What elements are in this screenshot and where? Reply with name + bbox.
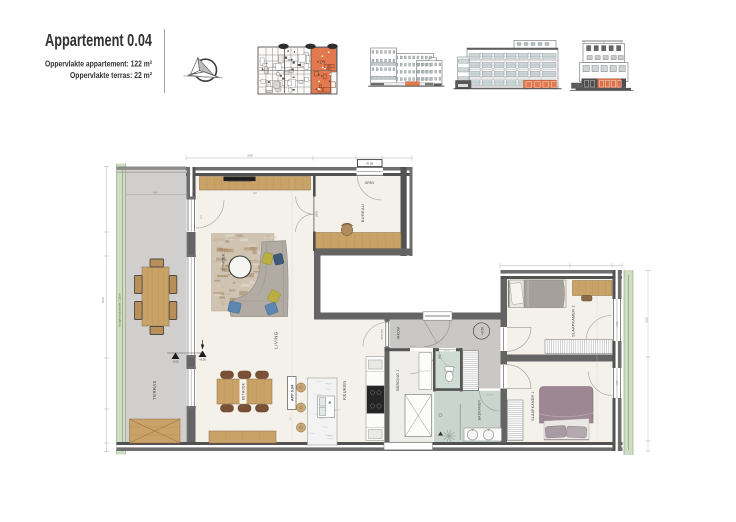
svg-text:A150: A150	[616, 380, 619, 386]
svg-text:BUREAU: BUREAU	[361, 204, 365, 222]
svg-text:80/207: 80/207	[444, 350, 451, 352]
svg-text:+0.30: +0.30	[199, 358, 206, 362]
svg-text:INKOM: INKOM	[397, 327, 401, 340]
svg-text:GRSV: GRSV	[365, 181, 375, 185]
svg-text:ZITHOEK: ZITHOEK	[222, 253, 226, 271]
svg-text:Appartement 0.04: Appartement 0.04	[45, 30, 152, 50]
svg-text:+0.30: +0.30	[480, 327, 484, 335]
svg-text:Oppervlakte appartement: 122 m: Oppervlakte appartement: 122 m²	[45, 60, 152, 69]
svg-text:80/207: 80/207	[487, 394, 494, 396]
svg-text:TERRAS: TERRAS	[152, 380, 157, 399]
svg-text:KEUKEN: KEUKEN	[342, 380, 347, 400]
svg-text:A150: A150	[616, 321, 619, 327]
svg-text:hoogte balustrade 1,10m: hoogte balustrade 1,10m	[117, 293, 121, 327]
svg-text:BADKAMER: BADKAMER	[478, 399, 482, 420]
svg-text:EETHOEK: EETHOEK	[242, 382, 246, 400]
svg-text:80/207: 80/207	[410, 346, 417, 348]
svg-text:Oppervlakte terras: 22 m²: Oppervlakte terras: 22 m²	[70, 71, 152, 80]
svg-text:180/2: 180/2	[315, 210, 319, 217]
svg-text:466: 466	[253, 192, 258, 195]
svg-text:8545: 8545	[101, 297, 105, 303]
svg-text:APP 0.04: APP 0.04	[290, 384, 294, 401]
svg-text:146: 146	[153, 190, 158, 194]
svg-text:SLAAPKAMER 2: SLAAPKAMER 2	[572, 305, 576, 337]
svg-text:2680: 2680	[247, 154, 253, 158]
svg-text:LIVING: LIVING	[274, 331, 279, 348]
svg-text:-0.02: -0.02	[173, 360, 179, 364]
svg-text:SLAAPKAMER 1: SLAAPKAMER 1	[531, 391, 535, 420]
svg-text:pivot deur: pivot deur	[381, 329, 384, 340]
svg-text:WC: WC	[438, 354, 442, 359]
svg-text:4150: 4150	[645, 317, 649, 323]
svg-text:W 2B: W 2B	[366, 161, 373, 165]
svg-text:BERGING 1: BERGING 1	[396, 369, 400, 390]
